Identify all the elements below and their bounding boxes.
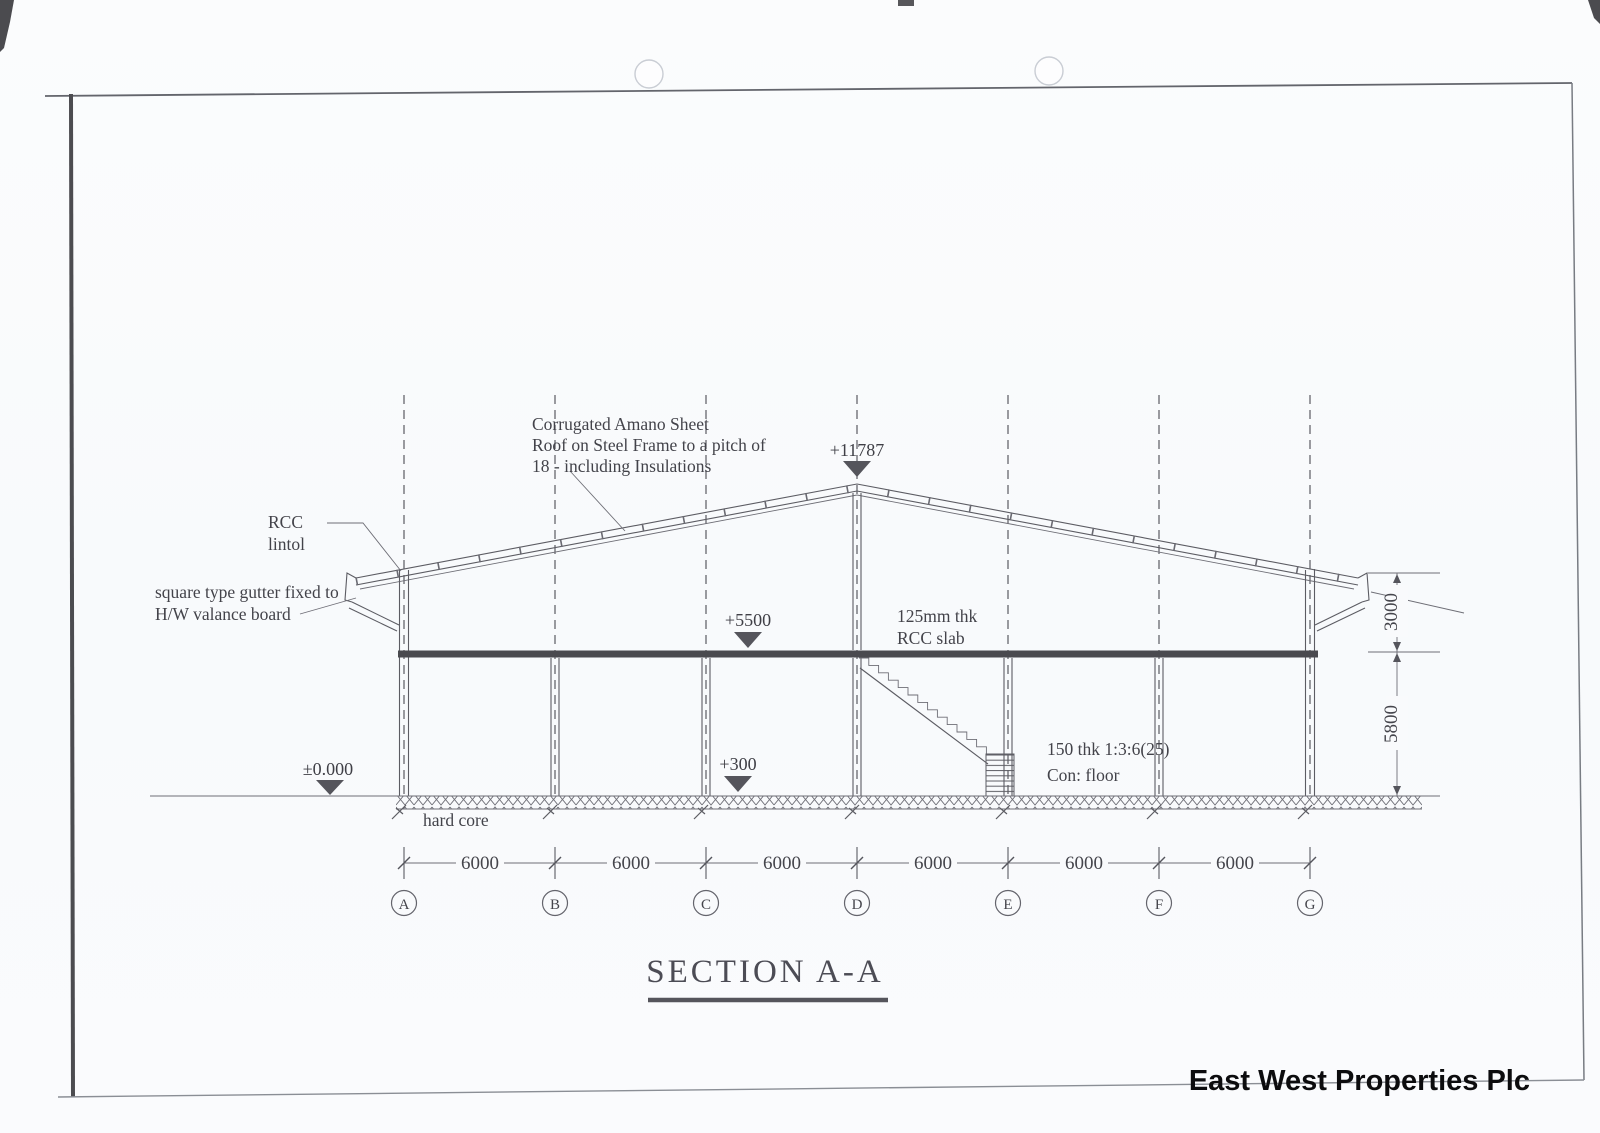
right-dimensions: 3000 5800: [1368, 573, 1440, 796]
lintol-note-line1: RCC: [268, 512, 303, 532]
grid-label-g: G: [1305, 897, 1316, 913]
level-ridge: +11787: [830, 440, 884, 460]
bay-dim-2: 6000: [612, 853, 650, 874]
bay-dim-5: 6000: [1065, 853, 1103, 874]
punch-hole-left: [635, 60, 663, 88]
roof-note-line2: Roof on Steel Frame to a pitch of: [532, 435, 766, 455]
ground: [150, 796, 1440, 809]
grid-label-c: C: [701, 897, 711, 913]
grid-bubble-labels: A B C D E F G: [399, 897, 1316, 913]
bay-dim-4: 6000: [914, 853, 952, 874]
leader-lines: [300, 471, 625, 614]
punch-hole-right: [1035, 57, 1063, 85]
hardcore-hatch: [396, 796, 1422, 809]
floor-note-line2: Con: floor: [1047, 765, 1120, 785]
bay-dim-3: 6000: [763, 853, 801, 874]
drawing-title: SECTION A-A: [646, 954, 883, 990]
level-markers: +11787 +5500 +300 ±0.000: [303, 440, 884, 795]
grid-label-e: E: [1003, 897, 1012, 913]
scan-artifacts: [0, 0, 1600, 52]
slab-note-line2: RCC slab: [897, 628, 965, 648]
stair-landing: [986, 754, 1014, 796]
bay-dim-6: 6000: [1216, 853, 1254, 874]
section-drawing: 6000 6000 6000 6000 6000 6000 A B C D E …: [0, 0, 1600, 1133]
grid-label-d: D: [852, 897, 863, 913]
level-slab: +5500: [725, 610, 771, 630]
floor-note-line1: 150 thk 1:3:6(25): [1047, 739, 1170, 759]
vdim-5800: 5800: [1381, 705, 1402, 743]
grid-label-f: F: [1155, 897, 1163, 913]
gutter-note-line2: H/W valance board: [155, 604, 291, 624]
company-logo-text: East West Properties Plc: [1189, 1065, 1530, 1097]
level-datum: ±0.000: [303, 759, 353, 779]
roof-note-line3: 18 - including Insulations: [532, 456, 712, 476]
bay-dim-1: 6000: [461, 853, 499, 874]
lintol-note-line2: lintol: [268, 534, 305, 554]
hardcore-label: hard core: [423, 810, 489, 830]
drawing-sheet: 6000 6000 6000 6000 6000 6000 A B C D E …: [0, 0, 1600, 1133]
punch-holes: [635, 57, 1063, 88]
slab-note-line1: 125mm thk: [897, 606, 977, 626]
level-floor: +300: [719, 754, 756, 774]
roof-note-line1: Corrugated Amano Sheet: [532, 414, 709, 434]
staircase: [859, 658, 1014, 796]
gutter-note-line1: square type gutter fixed to: [155, 582, 339, 602]
vdim-3000: 3000: [1381, 593, 1402, 631]
bottom-dimensions: 6000 6000 6000 6000 6000 6000: [398, 847, 1316, 879]
grid-label-b: B: [550, 897, 560, 913]
grid-label-a: A: [399, 897, 410, 913]
